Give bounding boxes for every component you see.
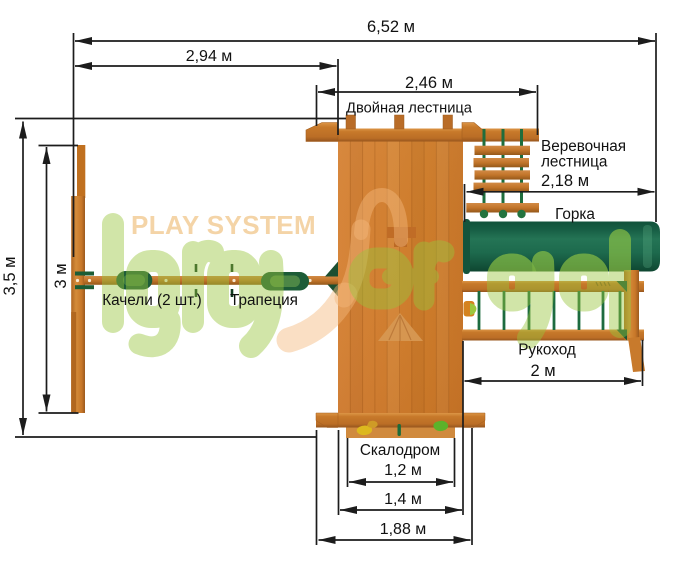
svg-text:2,46 м: 2,46 м [405, 74, 453, 92]
svg-text:лестница: лестница [541, 154, 608, 171]
svg-text:Качели (2 шт.): Качели (2 шт.) [102, 292, 202, 309]
svg-text:Двойная лестница: Двойная лестница [346, 101, 473, 117]
svg-text:PLAY SYSTEM: PLAY SYSTEM [131, 210, 316, 240]
svg-text:1,4 м: 1,4 м [384, 491, 422, 508]
svg-text:2 м: 2 м [530, 362, 555, 380]
svg-text:Веревочная: Веревочная [541, 138, 626, 155]
svg-text:2,18 м: 2,18 м [541, 172, 589, 190]
svg-text:1,88 м: 1,88 м [380, 521, 427, 538]
svg-text:6,52 м: 6,52 м [367, 18, 415, 36]
svg-text:Горка: Горка [555, 206, 595, 223]
svg-text:2,94 м: 2,94 м [186, 48, 233, 65]
svg-text:Скалодром: Скалодром [360, 442, 440, 459]
svg-text:3 м: 3 м [52, 263, 70, 288]
svg-text:3,5 м: 3,5 м [1, 257, 19, 296]
svg-text:1,2 м: 1,2 м [384, 462, 422, 479]
svg-text:Рукоход: Рукоход [518, 342, 576, 359]
svg-text:Трапеция: Трапеция [230, 292, 298, 309]
